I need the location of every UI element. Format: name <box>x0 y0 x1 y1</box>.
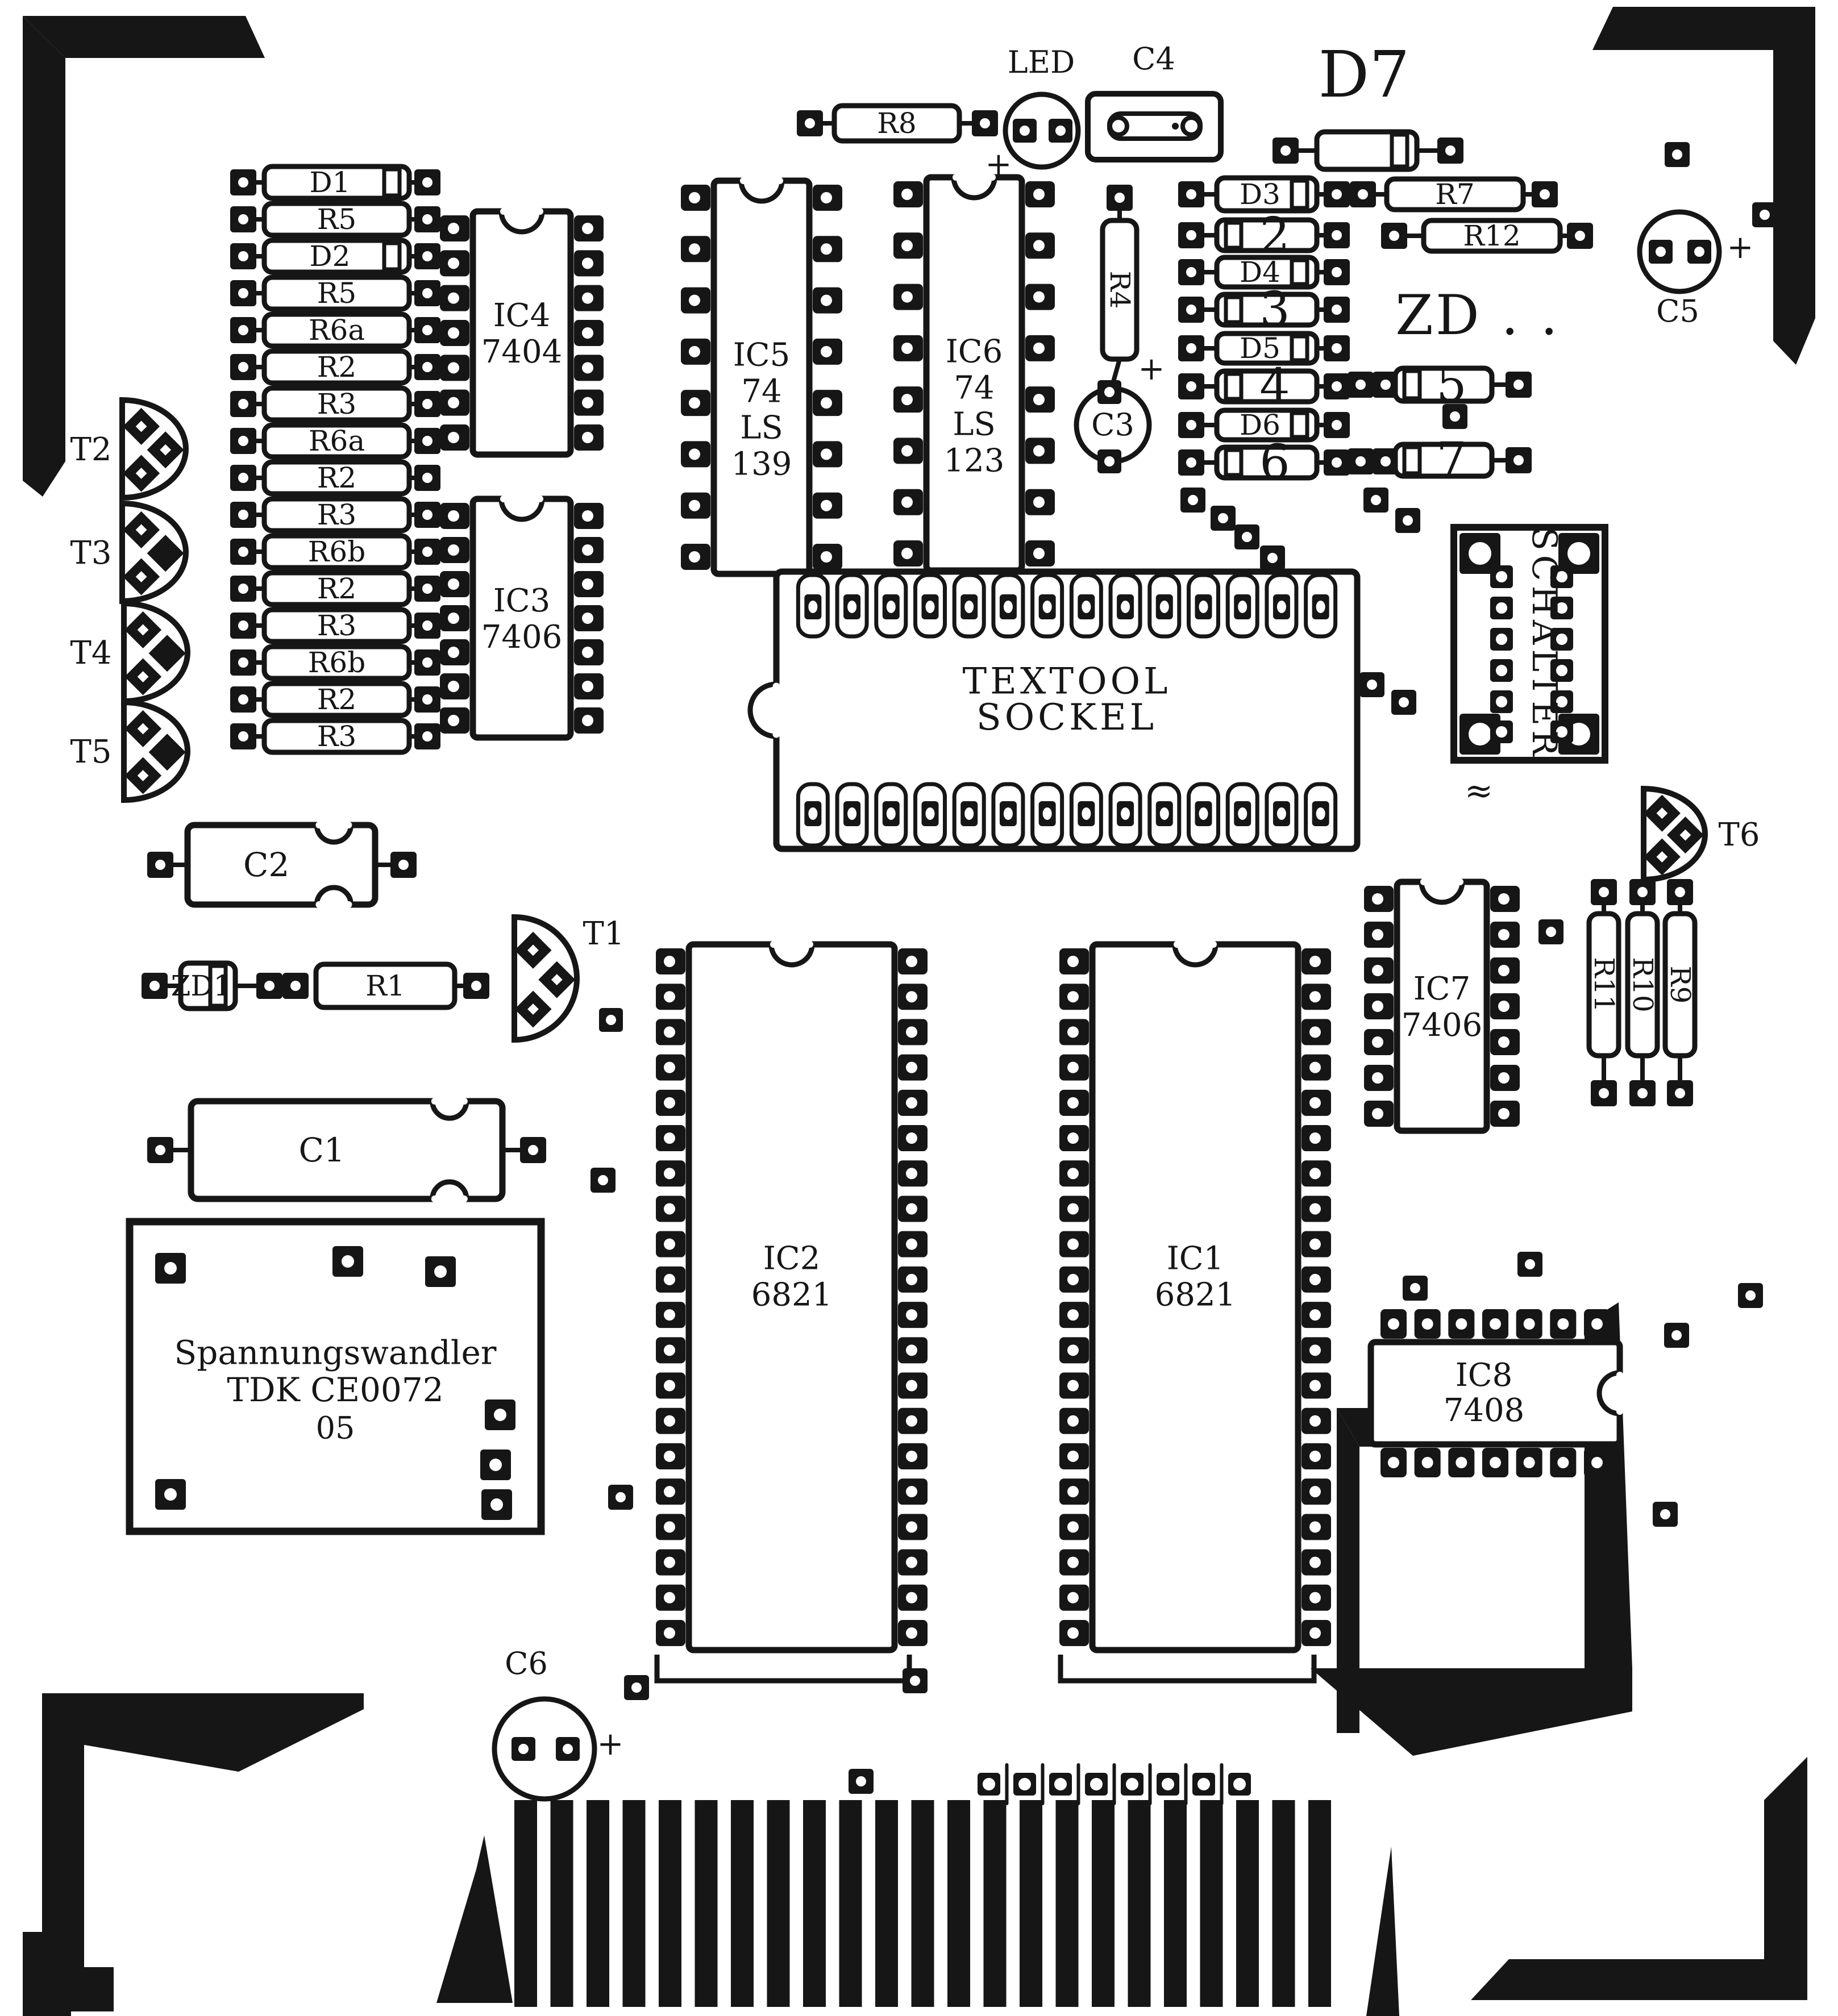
textool-socket-slot-bottom-hole <box>1316 807 1325 820</box>
IC8-pin-bottom-hole <box>1524 1457 1535 1468</box>
IC1-pin-left-hole <box>1067 1168 1079 1179</box>
IC5-label: IC5 <box>733 336 791 373</box>
IC1-pin-right-hole <box>1309 1239 1321 1250</box>
registration-mark-bottom-right-outer-h <box>1471 1959 1807 2000</box>
IC4-pin-left-hole <box>448 257 459 269</box>
textool-socket-slot-bottom-hole <box>1160 807 1169 820</box>
pen-squiggle: ≈ <box>1465 771 1493 811</box>
IC2-pin-left-hole <box>664 1239 675 1250</box>
ZD7-pad-left2-hole <box>1380 456 1391 466</box>
IC5-label: LS <box>740 409 783 446</box>
ZD6-label: 6 <box>1259 435 1290 490</box>
stack-13-R6b-pad-left-hole <box>238 657 248 668</box>
stack-0-D1-pad-right-hole <box>422 177 433 188</box>
stack-7-R6a-pad-right-hole <box>422 436 433 446</box>
IC5-pin-left-hole <box>689 551 700 563</box>
stack-15-R3-pad-right-hole <box>422 731 433 742</box>
ZD6-pad-left-hole <box>1186 457 1196 468</box>
C4-dot <box>1172 123 1179 130</box>
edge-finger <box>659 1800 681 2007</box>
IC4-pin-left-hole <box>448 293 459 304</box>
ZD1-pad-right2-hole <box>290 981 301 991</box>
IC8-pin-top-hole <box>1557 1318 1569 1330</box>
via-pad-hole <box>1450 411 1460 422</box>
T6-label: T6 <box>1719 817 1760 853</box>
dip-switch-label: SCHALTER <box>1524 527 1564 761</box>
stack-11-R2-pad-left-hole <box>238 584 248 594</box>
T1-label: T1 <box>583 915 625 952</box>
IC1-pin-right-hole <box>1309 1451 1321 1462</box>
IC2-pin-left-hole <box>664 1486 675 1497</box>
IC4-label: 7404 <box>481 334 563 370</box>
IC2-pin-left-hole <box>664 1274 675 1285</box>
R8-pad-left-hole <box>805 118 815 128</box>
ZD5-cathode-band <box>1404 371 1420 398</box>
textool-socket-slot-bottom-hole <box>1199 807 1208 820</box>
registration-mark-bottom-left-outer-2 <box>23 1967 114 2011</box>
pcb-diagram: D1R5D2R5R6aR2R3R6aR2R3R6bR2R3R6bR2R3R8D7… <box>0 0 1838 2016</box>
dip-switch-pin-pad-hole <box>1496 665 1507 676</box>
ZD3-label: 3 <box>1259 282 1290 338</box>
R10-label: R10 <box>1627 957 1658 1012</box>
textool-socket-slot-bottom-hole <box>808 807 817 820</box>
dip-switch-pin-pad-hole <box>1496 571 1507 582</box>
IC7-pin-left-hole <box>1372 1072 1383 1084</box>
via-pad-hole <box>1242 532 1252 542</box>
textool-socket-slot-top-hole <box>1277 601 1286 613</box>
ZD7-label: 7 <box>1436 432 1466 488</box>
trace-bracket <box>657 1655 909 1681</box>
edge-finger <box>839 1800 862 2007</box>
pcb-board: D1R5D2R5R6aR2R3R6aR2R3R6bR2R3R6bR2R3R8D7… <box>0 0 1838 2016</box>
stack-1-R5-pad-left-hole <box>238 214 248 224</box>
IC8-pin-bottom-hole <box>1591 1457 1603 1468</box>
C1-pad-right-hole <box>528 1145 538 1155</box>
dip-switch-pin-pad-hole <box>1496 726 1507 738</box>
R1-pad-right-hole <box>471 981 481 991</box>
pad-row-pad-hole <box>1126 1778 1138 1790</box>
C5-pad-0-hole <box>1656 247 1666 257</box>
dip-switch-pin-pad-hole <box>1496 634 1507 645</box>
IC2-pin-left-hole <box>664 1451 675 1462</box>
R4-pad-top-hole <box>1115 193 1125 203</box>
IC5-pin-right-hole <box>821 295 832 306</box>
C3-label: C3 <box>1091 407 1134 443</box>
IC1-pin-right-hole <box>1309 1380 1321 1392</box>
ZD5-label: 5 <box>1436 357 1466 413</box>
stack-12-R3-pad-right-hole <box>422 620 433 631</box>
IC1-pin-left-hole <box>1067 1451 1079 1462</box>
IC2-pin-right-hole <box>906 1486 917 1497</box>
T5-label: T5 <box>70 734 112 770</box>
stack-1-R5-label: R5 <box>317 203 356 236</box>
IC2-pin-left-hole <box>664 1026 675 1038</box>
pad-row-pad-hole <box>1018 1778 1031 1790</box>
IC1-label: 6821 <box>1155 1277 1236 1314</box>
IC2-label: 6821 <box>751 1277 833 1314</box>
R11-pad-bottom-hole <box>1599 1088 1609 1098</box>
R10-pad-top-hole <box>1637 887 1648 897</box>
IC1-pin-left-hole <box>1067 1592 1079 1603</box>
R8-pad-right-hole <box>980 118 990 128</box>
via-pad-hole <box>1745 1290 1756 1301</box>
D3-pad-right-hole <box>1332 189 1342 199</box>
textool-socket-slot-top-hole <box>887 601 896 613</box>
D6-pad-left-hole <box>1186 420 1196 430</box>
pad-row-pad-hole <box>1233 1778 1246 1790</box>
stack-0-D1-pad-left-hole <box>238 177 248 188</box>
textool-socket-slot-bottom-hole <box>1238 807 1247 820</box>
registration-mark-bottom-left-h <box>42 1693 364 1772</box>
IC6-pin-right-hole <box>1033 548 1045 559</box>
textool-socket-slot-bottom-hole <box>964 807 974 820</box>
R10-pad-bottom-hole <box>1637 1088 1648 1098</box>
textool-socket-slot-bottom-hole <box>1004 807 1013 820</box>
IC2-pin-right-hole <box>906 1097 917 1109</box>
edge-finger <box>1200 1800 1223 2007</box>
via-pad-hole <box>1410 1283 1420 1293</box>
IC3-pin-right-hole <box>582 544 593 556</box>
IC1-pin-right-hole <box>1309 1309 1321 1321</box>
LED-polarity-plus: + <box>985 146 1012 183</box>
R7-pad-right-hole <box>1540 189 1550 199</box>
IC1-label: IC1 <box>1167 1240 1224 1277</box>
IC5-label: 139 <box>731 445 792 482</box>
IC6-pin-right-hole <box>1033 445 1045 456</box>
C5-polarity-plus: + <box>1727 229 1754 266</box>
D5-cathode-band <box>1292 336 1307 360</box>
IC1-pin-right-hole <box>1309 991 1321 1002</box>
via-pad-hole <box>1760 210 1770 220</box>
D4-cathode-band <box>1292 260 1307 284</box>
stack-14-R2-pad-left-hole <box>238 694 248 705</box>
IC7-pin-right-hole <box>1498 965 1510 976</box>
IC7-pin-left-hole <box>1372 929 1383 940</box>
C1-pad-left-hole <box>155 1145 165 1155</box>
IC1-pin-left-hole <box>1067 1309 1079 1321</box>
C3-pad-1-hole <box>1104 456 1115 466</box>
IC4-pin-right-hole <box>582 257 593 269</box>
ZD4-label: 4 <box>1259 359 1290 414</box>
IC2-pin-left-hole <box>664 1309 675 1321</box>
IC4-pin-right-hole <box>582 432 593 443</box>
stack-9-R3-pad-left-hole <box>238 510 248 520</box>
C2-pad-right-hole <box>398 860 409 870</box>
IC7-pin-right-hole <box>1498 1072 1510 1084</box>
stack-6-R3-pad-right-hole <box>422 399 433 409</box>
via-pad-hole <box>1371 495 1381 505</box>
IC6-pin-left-hole <box>901 548 913 559</box>
IC8-pin-bottom-hole <box>1456 1457 1467 1468</box>
textool-socket-notch <box>750 684 776 736</box>
dip-switch-mount-pad-hole-1 <box>1567 542 1590 565</box>
IC5-pin-right-hole <box>821 243 832 255</box>
IC6-pin-left-hole <box>901 497 913 508</box>
IC4-pin-right-hole <box>582 293 593 304</box>
textool-socket-slot-top-hole <box>1004 601 1013 613</box>
C4-pad-left <box>1110 118 1127 135</box>
IC3-pin-right-hole <box>582 715 593 726</box>
C1-label: C1 <box>299 1131 345 1169</box>
IC7-pin-left-hole <box>1372 1036 1383 1048</box>
edge-finger <box>1164 1800 1187 2007</box>
IC1-pin-right-hole <box>1309 1557 1321 1568</box>
registration-mark-top-left-h <box>23 16 265 58</box>
IC2-pin-right-hole <box>906 1592 917 1603</box>
via-pad-hole <box>856 1776 866 1786</box>
IC1-pin-left-hole <box>1067 1062 1079 1073</box>
IC8-pin-bottom-hole <box>1422 1457 1433 1468</box>
IC7-pin-right-hole <box>1498 1001 1510 1012</box>
edge-finger <box>514 1800 537 2007</box>
registration-mark-ic8-left-v <box>1337 1408 1359 1733</box>
IC3-pin-left-hole <box>448 578 459 590</box>
IC6-pin-left-hole <box>901 189 913 200</box>
IC2-pin-left-hole <box>664 1627 675 1639</box>
stack-8-R2-pad-right-hole <box>422 473 433 483</box>
IC2-pin-left-hole <box>664 1557 675 1568</box>
D5-pad-right-hole <box>1332 343 1342 353</box>
ZD6-pad-right-hole <box>1332 457 1342 468</box>
IC1-pin-left-hole <box>1067 1627 1079 1639</box>
stack-5-R2-pad-left-hole <box>238 362 248 372</box>
C3-polarity-plus: + <box>1138 351 1165 388</box>
IC5-pin-right-hole <box>821 551 832 563</box>
IC5-pin-right-hole <box>821 397 832 409</box>
textool-socket-slot-top-hole <box>1082 601 1091 613</box>
IC3-pin-right-hole <box>582 578 593 590</box>
IC4-label: IC4 <box>493 297 551 334</box>
IC6-pin-left-hole <box>901 240 913 251</box>
ZD1-label: ZD1 <box>171 969 232 1002</box>
stack-3-R5-pad-right-hole <box>422 288 433 298</box>
stack-0-D1-cathode-band <box>384 169 400 195</box>
IC2-pin-left-hole <box>664 1062 675 1073</box>
ZD5-pad-left2-hole <box>1380 380 1391 390</box>
IC6-pin-right-hole <box>1033 497 1045 508</box>
IC5-pin-left-hole <box>689 295 700 306</box>
voltage-converter-module-pad-4-hole <box>489 1459 502 1471</box>
IC2-pin-right-hole <box>906 1203 917 1214</box>
textool-socket-slot-top-hole <box>847 601 856 613</box>
IC2-pin-left-hole <box>664 1592 675 1603</box>
voltage-converter-module-pad-1-hole <box>342 1255 354 1268</box>
IC1-pin-left-hole <box>1067 1380 1079 1392</box>
stack-11-R2-label: R2 <box>317 572 356 605</box>
R7-label: R7 <box>1435 178 1474 211</box>
ZD4-pad-right-hole <box>1332 381 1342 391</box>
IC3-label: 7406 <box>481 619 563 656</box>
stack-5-R2-label: R2 <box>317 351 356 384</box>
D5-pad-left-hole <box>1186 343 1196 353</box>
stack-2-D2-pad-right-hole <box>422 251 433 261</box>
IC2-pin-right-hole <box>906 1309 917 1321</box>
voltage-converter-module-pad-5-hole <box>490 1498 503 1511</box>
textool-socket-slot-bottom-hole <box>1043 807 1052 820</box>
voltage-converter-module-pad-6-hole <box>164 1488 177 1501</box>
textool-socket-label-line-1: SOCKEL <box>976 697 1157 739</box>
IC5-pin-right-hole <box>821 500 832 511</box>
D6-cathode-band <box>1292 413 1307 437</box>
stack-3-R5-pad-left-hole <box>238 288 248 298</box>
IC6-pin-left-hole <box>901 445 913 456</box>
edge-finger <box>695 1800 718 2007</box>
IC1-pin-left-hole <box>1067 1132 1079 1144</box>
IC1-pin-left-hole <box>1067 956 1079 967</box>
IC7-pin-left-hole <box>1372 893 1383 905</box>
IC3-pin-right-hole <box>582 647 593 658</box>
stack-2-D2-cathode-band <box>384 243 400 269</box>
IC6-pin-right-hole <box>1033 343 1045 354</box>
textool-socket-slot-top-hole <box>1121 601 1130 613</box>
stack-9-R3-label: R3 <box>317 498 356 531</box>
via-pad-hole <box>598 1175 608 1185</box>
IC1-pin-right-hole <box>1309 1203 1321 1214</box>
connector-wall-right <box>1366 1847 1399 2016</box>
IC1-pin-right-hole <box>1309 1274 1321 1285</box>
IC5-pin-left-hole <box>689 448 700 460</box>
IC1-pin-left-hole <box>1067 1203 1079 1214</box>
IC4-pin-left-hole <box>448 432 459 443</box>
IC8-pin-top-hole <box>1490 1318 1501 1330</box>
stack-1-R5-pad-right-hole <box>422 214 433 224</box>
stack-13-R6b-label: R6b <box>308 646 365 679</box>
IC2-pin-right-hole <box>906 1627 917 1639</box>
IC6-pin-right-hole <box>1033 189 1045 200</box>
IC2-pin-right-hole <box>906 1026 917 1038</box>
textool-socket-slot-bottom-hole <box>926 807 935 820</box>
textool-socket-slot-top-hole <box>1238 601 1247 613</box>
R9-label: R9 <box>1664 966 1696 1004</box>
C6-polarity-plus: + <box>597 1726 624 1763</box>
via-pad-hole <box>1672 149 1682 160</box>
ZD3-cathode-band <box>1226 297 1241 322</box>
IC3-pin-left-hole <box>448 613 459 624</box>
IC6-label: IC6 <box>946 333 1003 370</box>
ZD2-pad-left-hole <box>1186 230 1196 240</box>
stack-2-D2-label: D2 <box>310 240 351 273</box>
C4-pad-right <box>1183 118 1200 135</box>
ZD2-pad-right-hole <box>1332 230 1342 240</box>
edge-finger <box>1128 1800 1151 2007</box>
IC3-pin-right-hole <box>582 681 593 692</box>
IC7-pin-right-hole <box>1498 1036 1510 1048</box>
registration-mark-bottom-left-v <box>42 1693 84 1972</box>
pad-row-pad-hole <box>983 1778 995 1790</box>
IC7-pin-left-hole <box>1372 1001 1383 1012</box>
IC7-pin-left-hole <box>1372 1108 1383 1119</box>
registration-mark-top-right-v <box>1773 7 1815 365</box>
via-pad-hole <box>1267 553 1278 563</box>
IC1-pin-left-hole <box>1067 1415 1079 1427</box>
stack-14-R2-pad-right-hole <box>422 694 433 705</box>
stack-12-R3-pad-left-hole <box>238 620 248 631</box>
IC6-label: LS <box>953 406 996 443</box>
IC4-pin-right-hole <box>582 397 593 409</box>
IC1-pin-right-hole <box>1309 1344 1321 1356</box>
R11-label: R11 <box>1588 957 1620 1012</box>
pad-row-pad-hole <box>1054 1778 1067 1790</box>
IC5-pin-right-hole <box>821 346 832 357</box>
dip-switch-pin-pad-hole <box>1496 696 1507 707</box>
IC1-pin-right-hole <box>1309 956 1321 967</box>
IC6-pin-right-hole <box>1033 394 1045 405</box>
R4-label: R4 <box>1104 271 1136 309</box>
textool-socket-slot-bottom-hole <box>1082 807 1091 820</box>
IC3-pin-left-hole <box>448 681 459 692</box>
C3-pad-0-hole <box>1104 387 1115 397</box>
IC5-label: 74 <box>741 373 781 410</box>
LED-pad-0-hole <box>1020 126 1030 136</box>
IC4-pin-left-hole <box>448 223 459 234</box>
T2-label: T2 <box>70 431 112 468</box>
IC8-pin-top-hole <box>1591 1318 1603 1330</box>
IC2-pin-left-hole <box>664 1521 675 1532</box>
IC1-pin-right-hole <box>1309 1592 1321 1603</box>
edge-finger <box>551 1800 573 2007</box>
ZD4-cathode-band <box>1226 374 1241 399</box>
voltage-converter-module-label-line-1: TDK CE0072 <box>227 1371 443 1409</box>
via-pad-hole <box>1660 1509 1670 1519</box>
edge-finger <box>587 1800 609 2007</box>
IC8-label: 7408 <box>1444 1392 1525 1429</box>
IC7-pin-left-hole <box>1372 965 1383 976</box>
textool-socket-slot-top-hole <box>1160 601 1169 613</box>
IC2-pin-left-hole <box>664 1415 675 1427</box>
IC2-pin-right-hole <box>906 1521 917 1532</box>
IC1-pin-left-hole <box>1067 1344 1079 1356</box>
ZD7-pad-left-hole <box>1355 456 1366 466</box>
IC8-pin-top-hole <box>1524 1318 1535 1330</box>
IC3-pin-right-hole <box>582 510 593 522</box>
stack-6-R3-label: R3 <box>317 388 356 420</box>
IC2-pin-left-hole <box>664 1344 675 1356</box>
IC6-pin-left-hole <box>901 291 913 303</box>
stack-5-R2-pad-right-hole <box>422 362 433 372</box>
via-pad-hole <box>1218 513 1228 523</box>
IC1-pin-right-hole <box>1309 1097 1321 1109</box>
IC5-pin-left-hole <box>689 192 700 203</box>
via-pad-hole <box>1546 927 1556 937</box>
voltage-converter-module-pad-3-hole <box>494 1409 506 1421</box>
stack-10-R6b-label: R6b <box>308 535 365 568</box>
IC7-pin-right-hole <box>1498 1108 1510 1119</box>
D3-pad-left-hole <box>1186 189 1196 199</box>
IC4-pin-left-hole <box>448 362 459 373</box>
R11-pad-top-hole <box>1599 887 1609 897</box>
R12-pad-left-hole <box>1389 231 1399 241</box>
textool-socket-slot-top-hole <box>1316 601 1325 613</box>
IC8-pin-top-hole <box>1422 1318 1433 1330</box>
edge-finger <box>1056 1800 1079 2007</box>
IC2-pin-right-hole <box>906 1168 917 1179</box>
textool-socket-slot-top-hole <box>1199 601 1208 613</box>
IC2-pin-right-hole <box>906 1415 917 1427</box>
IC5-pin-right-hole <box>821 192 832 203</box>
stack-10-R6b-pad-left-hole <box>238 547 248 557</box>
edge-finger <box>1273 1800 1295 2007</box>
textool-socket-slot-top-hole <box>808 601 817 613</box>
via-pad-hole <box>1399 697 1409 707</box>
IC8-pin-bottom-hole <box>1557 1457 1569 1468</box>
stack-4-R6a-label: R6a <box>309 314 365 347</box>
IC1-pin-right-hole <box>1309 1168 1321 1179</box>
ZD1-pad-right-hole <box>264 981 275 991</box>
stack-14-R2-label: R2 <box>317 683 356 716</box>
stack-12-R3-label: R3 <box>317 609 356 642</box>
IC8-pin-bottom-hole <box>1388 1457 1399 1468</box>
IC3-pin-left-hole <box>448 647 459 658</box>
